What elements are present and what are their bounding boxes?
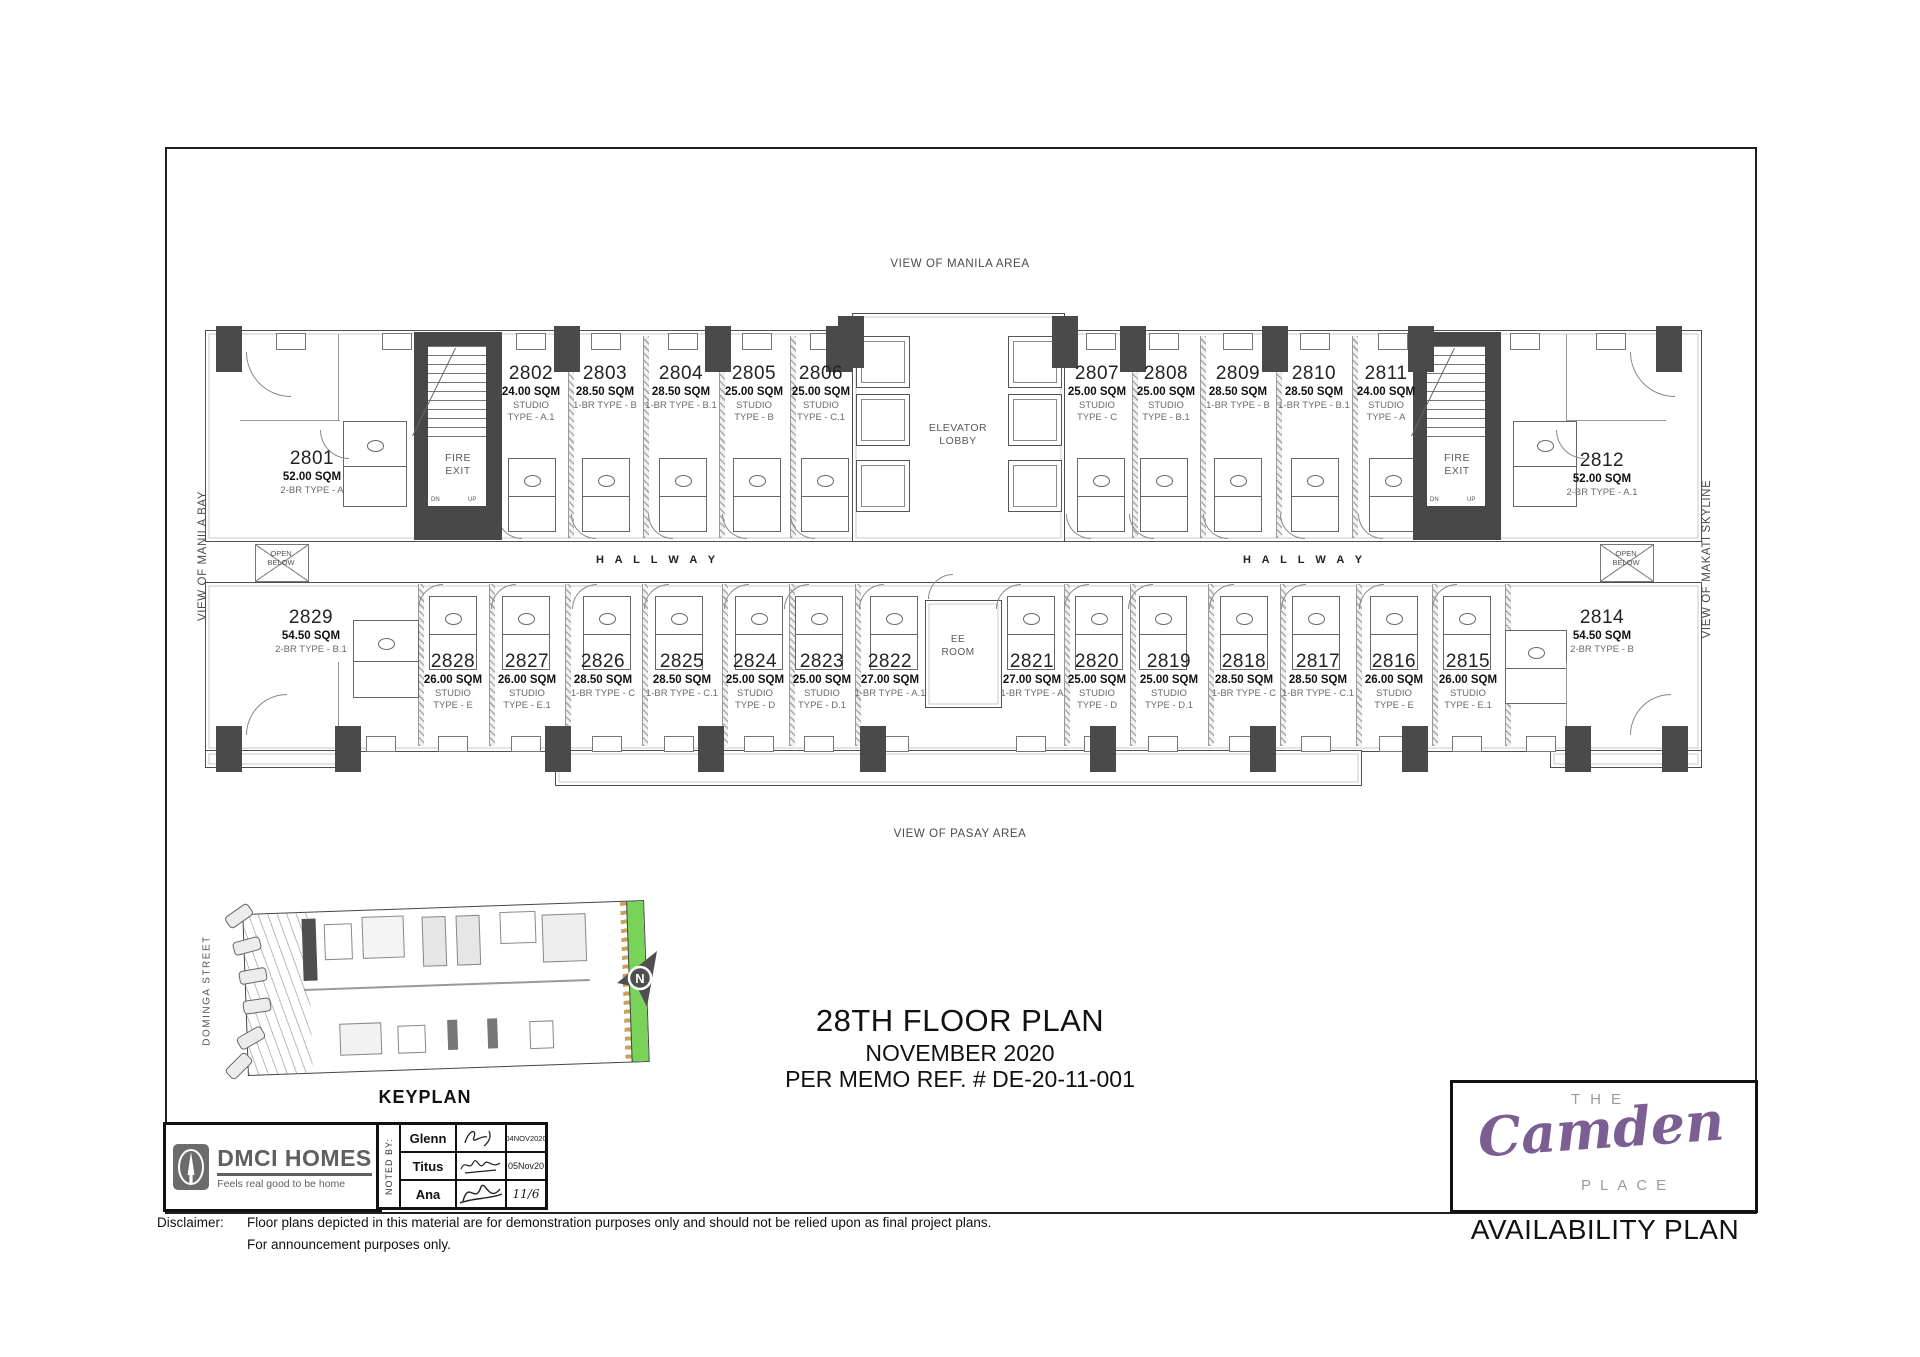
keyplan-block [339, 1022, 382, 1055]
unit-2829: 2829 54.50 SQM 2-BR TYPE - B.1 [256, 608, 366, 656]
ledge-box [1596, 333, 1626, 350]
stair-dn-label-right: DN [1430, 497, 1439, 503]
noted-by-date-3: 11/6 [506, 1180, 546, 1208]
unit-2801: 2801 52.00 SQM 2-BR TYPE - A [257, 449, 367, 497]
signature-ana [456, 1180, 506, 1208]
north-arrow-icon: N [613, 947, 659, 1009]
stair-up-label-right: UP [1467, 497, 1475, 503]
keyplan-block [541, 913, 587, 963]
fire-exit-label-left: FIRE EXIT [422, 452, 494, 478]
keyplan-block [422, 916, 448, 967]
elevator-car [1008, 460, 1062, 512]
ledge-box [1510, 333, 1540, 350]
ledge-box [1016, 736, 1046, 752]
lobby-column [838, 316, 864, 368]
disclaimer-label: Disclaimer: [157, 1215, 224, 1230]
ledge-box [276, 333, 306, 350]
ledge-box [1086, 333, 1116, 350]
column [545, 726, 571, 772]
keyplan-building [242, 900, 649, 1076]
unit-2811: 2811 24.00 SQM STUDIO TYPE - A [1331, 364, 1441, 424]
unit-2822: 2822 27.00 SQM 1-BR TYPE - A.1 [835, 652, 945, 700]
dmci-logo-icon [173, 1144, 209, 1190]
keyplan: DOMINGA STREET N KEYPLAN [195, 895, 695, 1115]
svg-text:N: N [635, 971, 644, 986]
ledge-box [1149, 333, 1179, 350]
elevator-lobby-label: ELEVATOR LOBBY [908, 422, 1008, 448]
noted-by-label: NOTED BY: [378, 1124, 400, 1208]
keyplan-block [304, 979, 590, 991]
unit-2812: 2812 52.00 SQM 2-BR TYPE - A.1 [1547, 451, 1657, 499]
noted-by-name-3: Ana [400, 1180, 456, 1208]
ledge-box [742, 333, 772, 350]
keyplan-block [447, 1020, 458, 1050]
ledge-box [366, 736, 396, 752]
noted-by-date-1: 04NOV2020 [506, 1124, 546, 1152]
fire-exit-label-right: FIRE EXIT [1421, 452, 1493, 478]
keyplan-block [302, 919, 318, 981]
interior-wall [1566, 420, 1666, 421]
ledge-box [591, 333, 621, 350]
ledge-box [668, 333, 698, 350]
ledge-box [804, 736, 834, 752]
ledge-box [744, 736, 774, 752]
column [860, 726, 886, 772]
signature-titus [456, 1152, 506, 1180]
open-below-label-right: OPEN BELOW [1596, 549, 1656, 567]
hallway-label-left: H A L L W A Y [596, 554, 719, 566]
building-ext-center [555, 750, 1362, 786]
stair-dn-label-left: DN [431, 497, 440, 503]
ledge-box [1300, 333, 1330, 350]
ledge-box [511, 736, 541, 752]
ledge-box [1526, 736, 1556, 752]
column [1565, 726, 1591, 772]
page-subtitle: NOVEMBER 2020 [760, 1040, 1160, 1067]
hallway-label-right: H A L L W A Y [1243, 554, 1366, 566]
unit-2806: 2806 25.00 SQM STUDIO TYPE - C.1 [766, 364, 876, 424]
ledge-box [664, 736, 694, 752]
open-below-label-left: OPEN BELOW [251, 549, 311, 567]
ledge-box [438, 736, 468, 752]
ledge-box [382, 333, 412, 350]
keyplan-block [499, 911, 536, 944]
noted-by-table: NOTED BY: Glenn 04NOV2020 Titus 05Nov20 … [376, 1122, 548, 1210]
column [1250, 726, 1276, 772]
view-label-left: VIEW OF MANILA BAY [197, 436, 209, 676]
unit-2814: 2814 54.50 SQM 2-BR TYPE - B [1547, 608, 1657, 656]
stair-up-label-left: UP [468, 497, 476, 503]
view-label-top: VIEW OF MANILA AREA [840, 258, 1080, 270]
ledge-box [1378, 333, 1408, 350]
ledge-box [1301, 736, 1331, 752]
column [1402, 726, 1428, 772]
interior-wall [1566, 334, 1567, 420]
view-label-right: VIEW OF MAKATI SKYLINE [1701, 439, 1713, 679]
ledge-box [1223, 333, 1253, 350]
view-label-bottom: VIEW OF PASAY AREA [840, 828, 1080, 840]
column [1662, 726, 1688, 772]
camden-place-word: PLACE [1581, 1177, 1675, 1194]
column [335, 726, 361, 772]
unit-2815: 2815 26.00 SQM STUDIO TYPE - E.1 [1413, 652, 1523, 712]
keyplan-block [529, 1020, 554, 1049]
dmci-tagline: Feels real good to be home [217, 1178, 345, 1190]
column [1656, 326, 1682, 372]
keyplan-block [455, 915, 481, 966]
ledge-box [592, 736, 622, 752]
keyplan-caption: KEYPLAN [315, 1087, 535, 1108]
camden-script: Camden [1459, 1087, 1743, 1170]
interior-wall [338, 334, 339, 420]
dmci-logo-block: DMCI HOMES Feels real good to be home [163, 1122, 382, 1212]
column [216, 326, 242, 372]
page-title: 28TH FLOOR PLAN [760, 1003, 1160, 1039]
elevator-car [856, 460, 910, 512]
availability-plan-sheet: VIEW OF MANILA AREA VIEW OF PASAY AREA V… [0, 0, 1920, 1357]
ledge-box [516, 333, 546, 350]
disclaimer-line1: Floor plans depicted in this material ar… [247, 1215, 991, 1230]
signature-glenn [456, 1124, 506, 1152]
noted-by-date-2: 05Nov20 [506, 1152, 546, 1180]
dmci-name: DMCI HOMES [217, 1145, 372, 1176]
lobby-column [1052, 316, 1078, 368]
keyplan-block [361, 915, 404, 958]
ledge-box [1148, 736, 1178, 752]
availability-plan-title: AVAILABILITY PLAN [1455, 1214, 1755, 1246]
keyplan-block [324, 923, 353, 960]
memo-ref: PER MEMO REF. # DE-20-11-001 [760, 1066, 1160, 1093]
keyplan-block [397, 1025, 426, 1054]
keyplan-block [487, 1018, 498, 1048]
column [698, 726, 724, 772]
interior-wall [240, 420, 340, 421]
ledge-box [1452, 736, 1482, 752]
keyplan-street-label: DOMINGA STREET [202, 901, 213, 1081]
column [1090, 726, 1116, 772]
noted-by-name-2: Titus [400, 1152, 456, 1180]
camden-place-logo: THE Camden PLACE [1450, 1080, 1758, 1213]
noted-by-name-1: Glenn [400, 1124, 456, 1152]
column [216, 726, 242, 772]
disclaimer-line2: For announcement purposes only. [247, 1237, 451, 1252]
